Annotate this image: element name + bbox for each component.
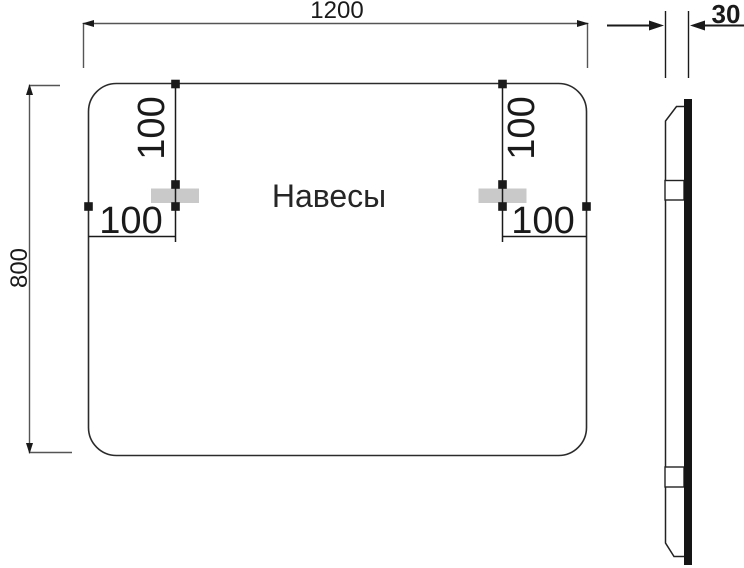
hanger-left-side-offset-value: 100 xyxy=(99,200,162,242)
marker-square-icon xyxy=(171,180,180,189)
marker-square-icon xyxy=(84,202,93,211)
hangers-label: Навесы xyxy=(272,178,386,214)
hanger-right-top-offset-value: 100 xyxy=(501,96,543,159)
hanger-right-side-offset-value: 100 xyxy=(511,200,574,242)
side-view-bracket-top xyxy=(665,181,684,201)
dim-width-value: 1200 xyxy=(310,0,363,24)
marker-square-icon xyxy=(582,202,591,211)
dim-width-line xyxy=(84,24,588,69)
dim-arrow-left-icon xyxy=(690,21,705,31)
drawing-svg: 1200 800 100 100 100 100 Навесы xyxy=(0,0,744,568)
marker-square-icon xyxy=(498,80,507,89)
marker-square-icon xyxy=(498,180,507,189)
side-view-bracket-bottom xyxy=(665,467,684,487)
technical-drawing: 1200 800 100 100 100 100 Навесы xyxy=(0,0,744,568)
dim-arrow-right-icon xyxy=(649,21,664,31)
hanger-left-top-offset-value: 100 xyxy=(131,96,173,159)
marker-square-icon xyxy=(171,80,180,89)
dim-width-1200: 1200 xyxy=(82,0,589,68)
dim-thickness-value: 30 xyxy=(712,0,741,29)
side-view-backing-outline xyxy=(666,107,685,557)
dim-height-value: 800 xyxy=(6,248,33,288)
side-view-panel-face xyxy=(684,99,692,565)
dim-thickness-30: 30 xyxy=(607,0,744,78)
dim-height-line xyxy=(30,86,73,453)
marker-square-icon xyxy=(498,202,507,211)
dim-height-800: 800 xyxy=(6,84,72,454)
side-view-group xyxy=(665,99,692,565)
marker-square-icon xyxy=(171,202,180,211)
